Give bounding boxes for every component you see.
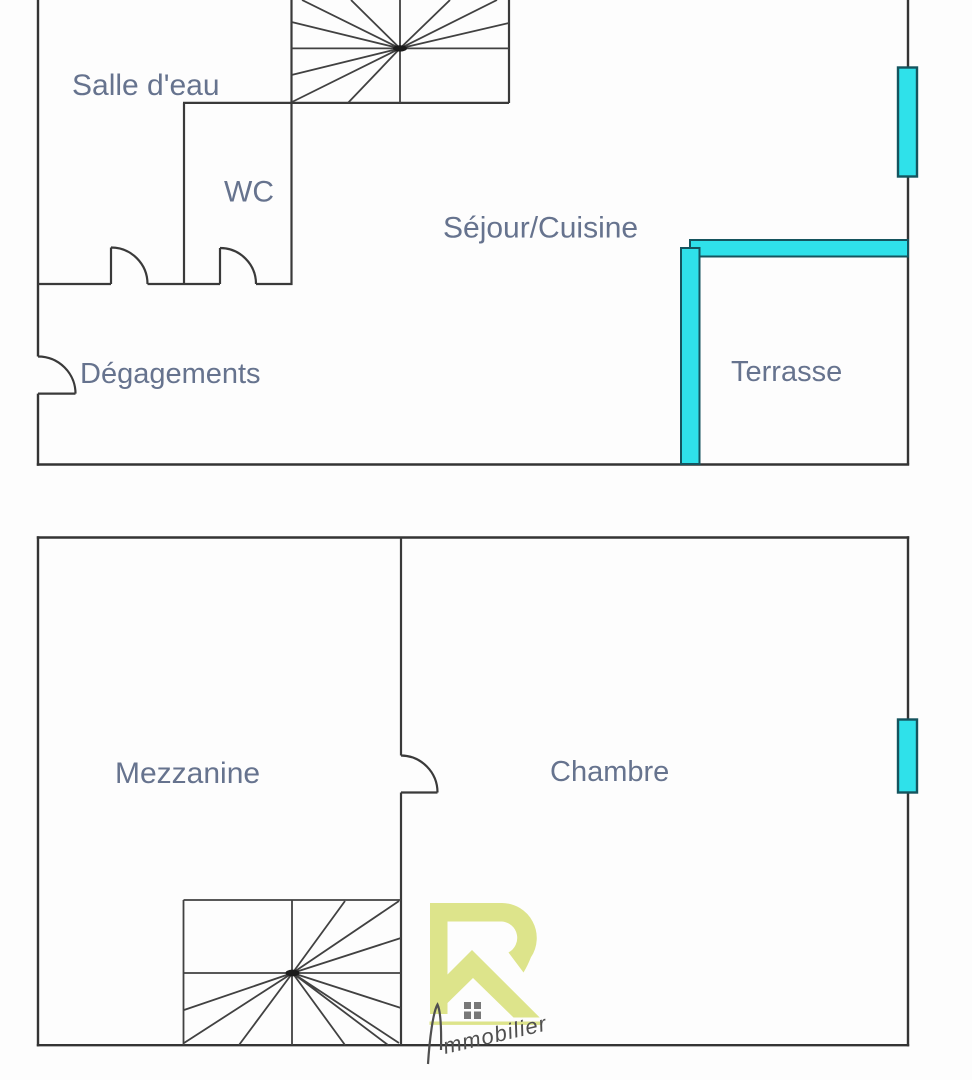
svg-text:Chambre: Chambre: [550, 756, 669, 788]
svg-text:Salle d'eau: Salle d'eau: [72, 69, 220, 102]
svg-text:Séjour/Cuisine: Séjour/Cuisine: [443, 212, 638, 245]
svg-text:Dégagements: Dégagements: [80, 358, 261, 390]
svg-text:WC: WC: [224, 176, 274, 209]
svg-text:Terrasse: Terrasse: [731, 356, 842, 388]
svg-text:Mezzanine: Mezzanine: [115, 757, 260, 790]
svg-text:mmobilier: mmobilier: [441, 1011, 551, 1059]
